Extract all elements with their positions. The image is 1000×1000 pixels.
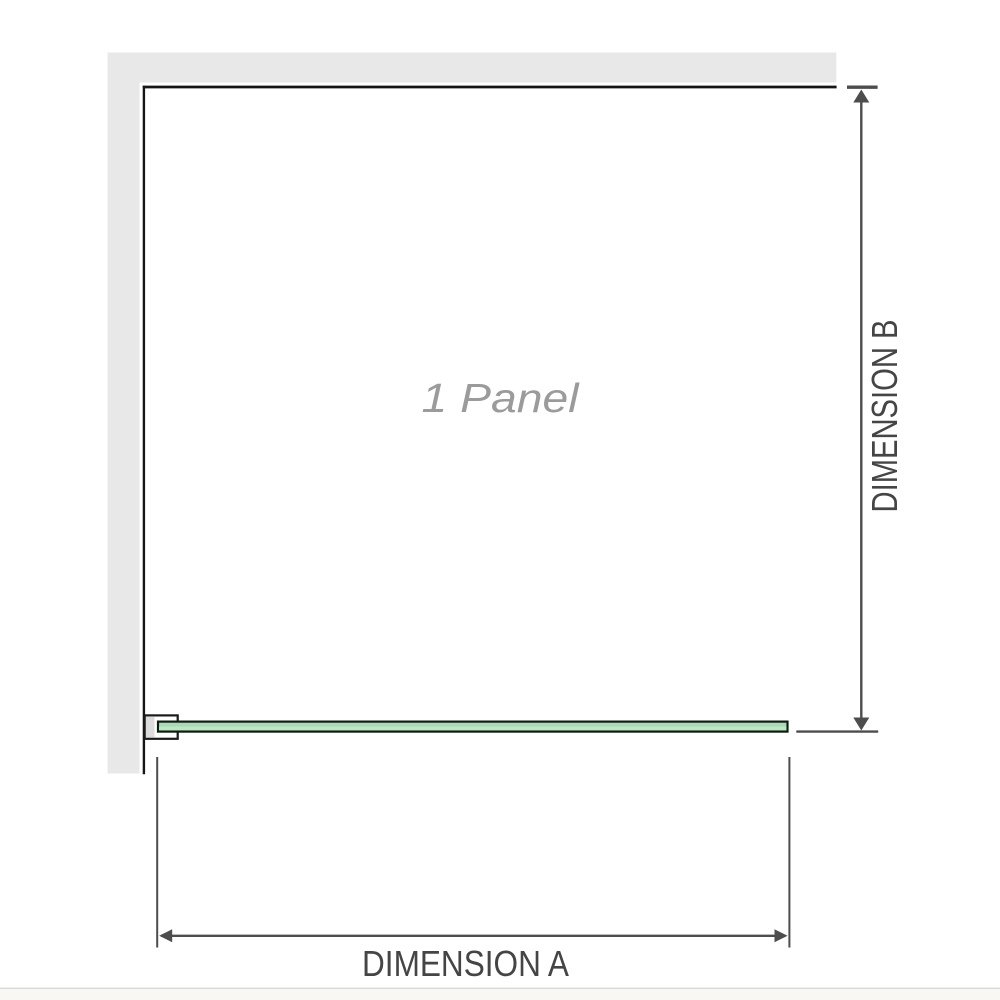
svg-text:DIMENSION B: DIMENSION B xyxy=(864,320,905,513)
svg-text:1 Panel: 1 Panel xyxy=(422,375,581,421)
svg-text:DIMENSION A: DIMENSION A xyxy=(362,943,569,984)
